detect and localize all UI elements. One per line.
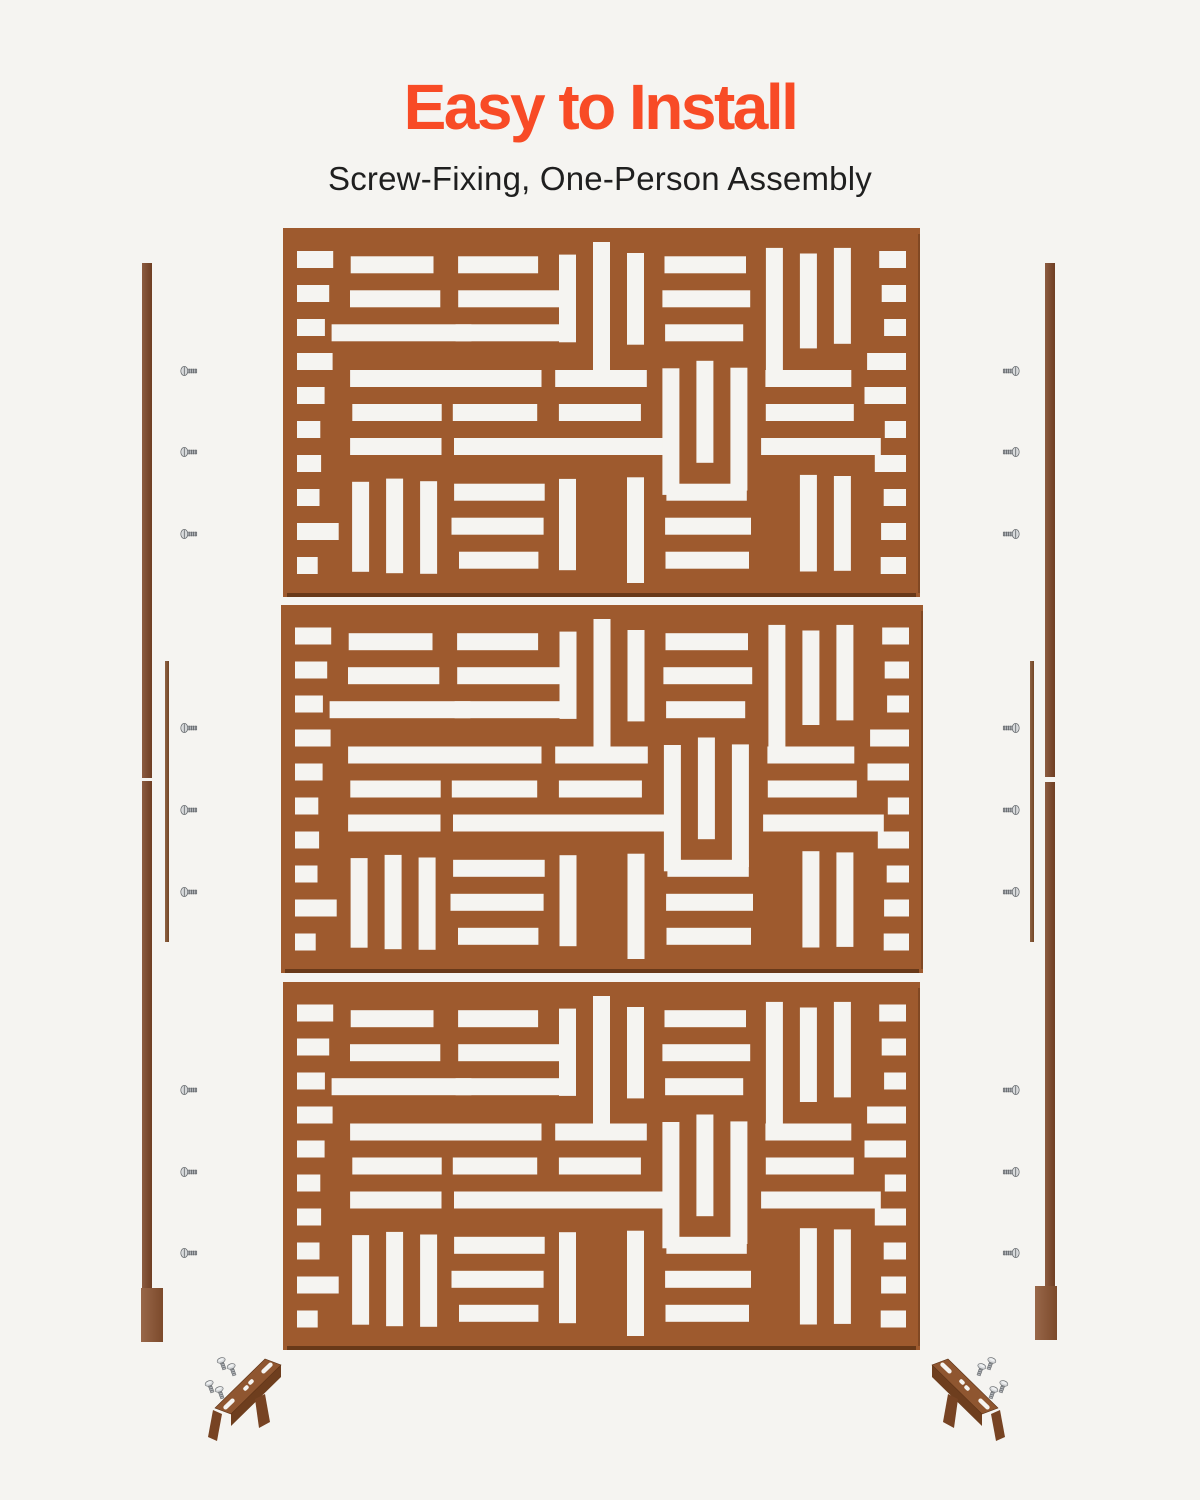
right-post-lower [1045,782,1055,1288]
screw-icon [180,1085,200,1095]
screw-icon [180,366,200,376]
base-bracket-right [898,1344,1018,1456]
screw-icon [180,887,200,897]
screw-icon [1000,1085,1020,1095]
right-joiner-bar [1030,661,1034,942]
screw-icon [204,1379,216,1393]
header: Easy to Install Screw-Fixing, One-Person… [0,74,1200,197]
screw-icon [1000,1248,1020,1258]
screw-icon [180,1248,200,1258]
screw-icon [214,1385,226,1399]
screw-icon [997,1379,1009,1393]
screw-icon [180,805,200,815]
right-post-foot [1035,1286,1057,1340]
screw-icon [180,723,200,733]
screw-icon [985,1356,997,1370]
screw-icon [180,1167,200,1177]
page-title: Easy to Install [0,74,1200,141]
screen-panel-middle [281,605,923,973]
page-subtitle: Screw-Fixing, One-Person Assembly [0,161,1200,197]
screw-icon [1000,887,1020,897]
screen-panel-top [283,228,920,597]
bracket-body [208,1359,281,1441]
screw-icon [1000,447,1020,457]
product-installation-graphic: Easy to Install Screw-Fixing, One-Person… [0,0,1200,1500]
screw-icon [975,1362,987,1376]
screw-icon [1000,366,1020,376]
base-bracket-left [195,1344,315,1456]
screw-icon [1000,529,1020,539]
screw-icon [1000,723,1020,733]
screen-panel-bottom [283,982,920,1350]
screw-icon [180,447,200,457]
left-joiner-bar [165,661,169,942]
left-post-foot [141,1288,163,1342]
right-post-upper [1045,263,1055,777]
screw-icon [226,1362,238,1376]
left-post-lower [142,781,152,1288]
left-post-upper [142,263,152,778]
screw-icon [1000,805,1020,815]
screw-icon [216,1356,228,1370]
screw-icon [1000,1167,1020,1177]
screw-icon [987,1385,999,1399]
bracket-body [932,1359,1005,1441]
screw-icon [180,529,200,539]
